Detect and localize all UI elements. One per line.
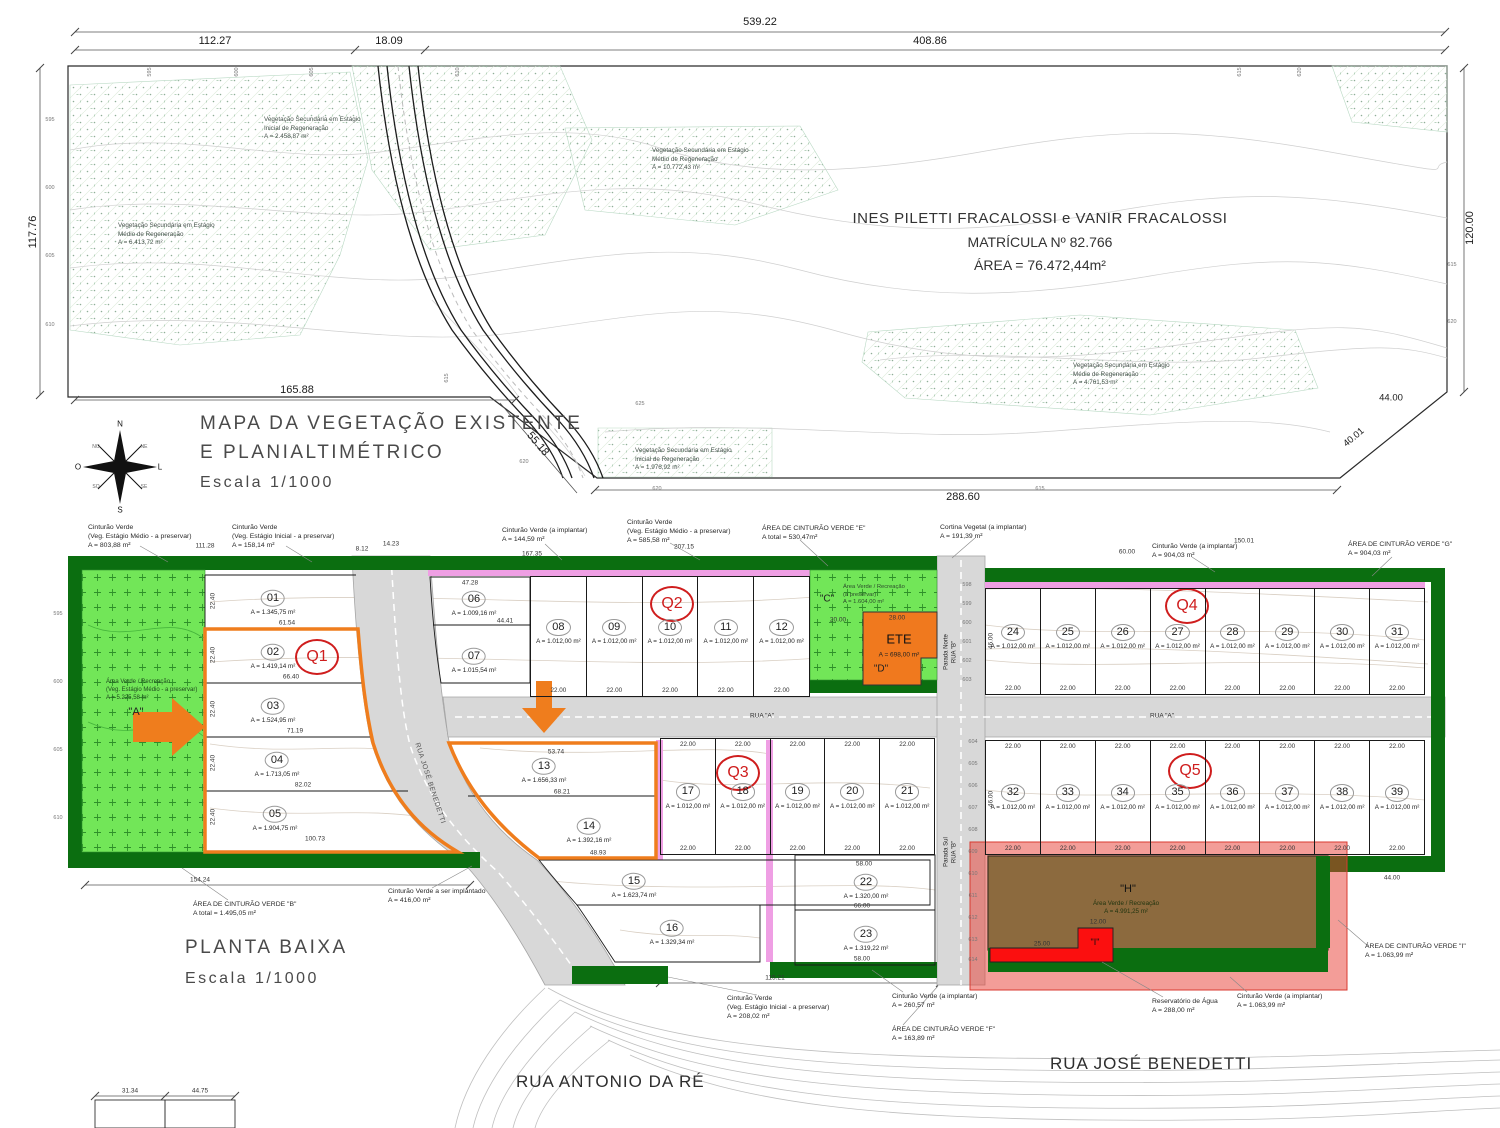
lot-36: 22.0036A = 1.012,00 m²22.00 bbox=[1206, 741, 1261, 854]
compass-se: SE bbox=[141, 484, 148, 490]
elev-tick: 605 bbox=[968, 761, 977, 767]
lot-21: 22.0021A = 1.012,00 m²22.00 bbox=[880, 739, 934, 854]
dim: 115.21 bbox=[765, 975, 784, 982]
compass-rose bbox=[83, 430, 157, 504]
dim-left: 117.76 bbox=[27, 216, 39, 249]
elev-tick: 600 bbox=[962, 620, 971, 626]
lot-28: 28A = 1.012,00 m²22.00 bbox=[1206, 589, 1261, 694]
ann-reservatorio: Reservatório de ÁguaA = 288,00 m² bbox=[1152, 997, 1218, 1015]
elev-tick: 604 bbox=[968, 739, 977, 745]
elev-tick: 610 bbox=[45, 322, 54, 328]
dim: 8.12 bbox=[356, 546, 369, 553]
elev-tick: 595 bbox=[147, 67, 153, 76]
dim-side: 22.40 bbox=[210, 647, 217, 663]
elev-tick: 598 bbox=[962, 582, 971, 588]
compass-o: O bbox=[75, 463, 81, 472]
quadra5-lot-row: 22.0032A = 1.012,00 m²22.00 22.0033A = 1… bbox=[985, 740, 1425, 855]
quadra4-lot-row: 24A = 1.012,00 m²22.00 25A = 1.012,00 m²… bbox=[985, 588, 1425, 695]
dim: 14.23 bbox=[383, 541, 399, 548]
ann-cinturao-f: ÁREA DE CINTURÃO VERDE "F"A = 163,89 m² bbox=[892, 1025, 995, 1043]
elev-tick: 612 bbox=[968, 915, 977, 921]
dim-seg2: 18.09 bbox=[375, 35, 403, 47]
lot-30: 30A = 1.012,00 m²22.00 bbox=[1315, 589, 1370, 694]
elev-tick: 602 bbox=[962, 658, 971, 664]
area-h-label: Área Verde / RecreaçãoA = 4.991,25 m² bbox=[1093, 900, 1159, 917]
lot-37: 22.0037A = 1.012,00 m²22.00 bbox=[1260, 741, 1315, 854]
lot-04: 04A = 1.713,05 m² bbox=[255, 750, 300, 778]
subdivision-plan-sheet: 539.22 112.27 18.09 408.86 117.76 120.00… bbox=[0, 0, 1500, 1128]
dim: 111.28 bbox=[196, 543, 215, 550]
dim: 31.34 bbox=[122, 1088, 138, 1095]
elev-tick: 600 bbox=[234, 67, 240, 76]
lot-35: 22.0035A = 1.012,00 m²22.00 bbox=[1151, 741, 1206, 854]
lot-24: 24A = 1.012,00 m²22.00 bbox=[986, 589, 1041, 694]
dim-lot03-len: 71.19 bbox=[287, 728, 303, 735]
lot-05: 05A = 1.904,75 m² bbox=[253, 804, 298, 832]
corner-detail-boxes bbox=[95, 1100, 235, 1128]
owner-name: INES PILETTI FRACALOSSI e VANIR FRACALOS… bbox=[810, 210, 1270, 227]
lot-09: 09A = 1.012,00 m²22.00 bbox=[587, 577, 643, 696]
area-i-name: "I" bbox=[1091, 937, 1100, 947]
bottom-street-lines bbox=[455, 988, 1500, 1128]
lot-12: 12A = 1.012,00 m²22.00 bbox=[754, 577, 809, 696]
elev-tick: 600 bbox=[53, 679, 62, 685]
elev-tick: 610 bbox=[968, 871, 977, 877]
compass-no: NO bbox=[92, 444, 100, 450]
veg-label-3: Vegetação Secundária em EstágioMédio de … bbox=[652, 147, 749, 173]
dim-side: 22.40 bbox=[210, 701, 217, 717]
lot-34: 22.0034A = 1.012,00 m²22.00 bbox=[1096, 741, 1151, 854]
lot-32: 22.0032A = 1.012,00 m²22.00 bbox=[986, 741, 1041, 854]
elev-tick: 615 bbox=[1447, 262, 1456, 268]
lot-27: 27A = 1.012,00 m²22.00 bbox=[1151, 589, 1206, 694]
dim-side: 22.40 bbox=[210, 593, 217, 609]
dim-lot04-len: 82.02 bbox=[295, 782, 311, 789]
elev-tick: 615 bbox=[444, 373, 450, 382]
dim-lot01-len: 61.54 bbox=[279, 620, 295, 627]
dim: 60.00 bbox=[1119, 549, 1135, 556]
dim: 44.75 bbox=[192, 1088, 208, 1095]
dim-side: 22.40 bbox=[210, 809, 217, 825]
street-rua-a: RUA "A" bbox=[750, 713, 774, 720]
ann-cv-implantar-3: Cinturão Verde (a implantar)A = 260,57 m… bbox=[892, 992, 977, 1010]
ann-cinturao-b: ÁREA DE CINTURÃO VERDE "B"A total = 1.49… bbox=[193, 900, 296, 918]
lot-11: 11A = 1.012,00 m²22.00 bbox=[698, 577, 754, 696]
lot-25: 25A = 1.012,00 m²22.00 bbox=[1041, 589, 1096, 694]
ann-cinturao-i: ÁREA DE CINTURÃO VERDE "I"A = 1.063,99 m… bbox=[1365, 942, 1466, 960]
lot-17: 22.0017A = 1.012,00 m²22.00 bbox=[661, 739, 716, 854]
ann-cv-inicial-2: Cinturão Verde(Veg. Estágio Inicial - a … bbox=[727, 994, 829, 1022]
ann-cv-implantar-4: Cinturão Verde (a implantar)A = 1.063,99… bbox=[1237, 992, 1322, 1010]
elev-tick: 615 bbox=[1237, 67, 1243, 76]
elev-tick: 620 bbox=[519, 459, 528, 465]
area-c-name: "C" bbox=[820, 594, 834, 605]
lot-13: 13A = 1.656,33 m² bbox=[522, 756, 567, 784]
ann-cv-ser-implantado: Cinturão Verde a ser implantadoA = 416,0… bbox=[388, 887, 485, 905]
lot-03: 03A = 1.524,95 m² bbox=[251, 696, 296, 724]
street-rua-a: RUA "A" bbox=[1150, 713, 1174, 720]
quadra3-lot-row: 22.0017A = 1.012,00 m²22.00 22.0018A = 1… bbox=[660, 738, 935, 855]
dim: 25.00 bbox=[1034, 941, 1050, 948]
area-c-label: Área Verde / Recreação(a preservar)A = 1… bbox=[843, 584, 905, 607]
dim-seg3: 408.86 bbox=[913, 35, 947, 47]
elev-tick: 595 bbox=[45, 117, 54, 123]
dim-lot05-len: 100.73 bbox=[305, 836, 325, 843]
owner-matricula: MATRÍCULA Nº 82.766 bbox=[810, 234, 1270, 250]
ann-cortina-vegetal: Cortina Vegetal (a implantar)A = 191,39 … bbox=[940, 523, 1027, 541]
area-a-name: "A" bbox=[128, 706, 143, 718]
ann-cv-implantar-2: Cinturão Verde (a implantar)A = 904,03 m… bbox=[1152, 542, 1237, 560]
lot-33: 22.0033A = 1.012,00 m²22.00 bbox=[1041, 741, 1096, 854]
dim: 207.15 bbox=[674, 544, 694, 551]
compass-l: L bbox=[158, 463, 162, 472]
dim-lot14-bottom: 48.93 bbox=[590, 850, 606, 857]
dim: 167.35 bbox=[522, 551, 542, 558]
street-rua-b-south: Parada SulRUA "B" bbox=[943, 837, 960, 867]
compass-n: N bbox=[117, 420, 123, 429]
elev-tick: 620 bbox=[1447, 319, 1456, 325]
ete-label: ETE bbox=[886, 632, 911, 647]
ann-cv-inicial: Cinturão Verde(Veg. Estágio Inicial - a … bbox=[232, 523, 334, 551]
dim-lot06-bottom: 44.41 bbox=[497, 618, 513, 625]
veg-label-5: Vegetação Secundária em EstágioInicial d… bbox=[635, 447, 732, 473]
ann-cv-implantar-1: Cinturão Verde (a implantar)A = 144,59 m… bbox=[502, 526, 587, 544]
lot-16: 16A = 1.329,34 m² bbox=[650, 918, 695, 946]
elev-tick: 614 bbox=[968, 957, 977, 963]
compass-so: SO bbox=[92, 484, 99, 490]
owner-title-block: INES PILETTI FRACALOSSI e VANIR FRACALOS… bbox=[810, 210, 1270, 273]
compass-ne: NE bbox=[141, 444, 148, 450]
area-d-name: "D" bbox=[874, 664, 888, 675]
elev-tick: 615 bbox=[1035, 486, 1044, 492]
elev-tick: 608 bbox=[968, 827, 977, 833]
lot-02: 02A = 1.419,14 m² bbox=[251, 642, 296, 670]
dim-lot02-len: 66.40 bbox=[283, 674, 299, 681]
street-rua-b-north: Parada NorteRUA "B" bbox=[943, 634, 960, 670]
lot-29: 29A = 1.012,00 m²22.00 bbox=[1260, 589, 1315, 694]
lot-18: 22.0018A = 1.012,00 m²22.00 bbox=[716, 739, 771, 854]
elev-tick: 599 bbox=[962, 601, 971, 607]
dim-lot23-bottom: 58.00 bbox=[854, 956, 870, 963]
lot-06: 06A = 1.009,16 m² bbox=[452, 589, 497, 617]
ann-cv-medio: Cinturão Verde(Veg. Estágio Médio - a pr… bbox=[88, 523, 192, 551]
elev-tick: 605 bbox=[45, 253, 54, 259]
elev-tick: 610 bbox=[53, 815, 62, 821]
dim-bottom-left: 165.88 bbox=[280, 384, 314, 396]
veg-label-1: Vegetação Secundária em EstágioInicial d… bbox=[264, 116, 361, 142]
ann-cinturao-e: ÁREA DE CINTURÃO VERDE "E"A total = 530,… bbox=[762, 524, 865, 542]
dim: 12.00 bbox=[1090, 919, 1106, 926]
ann-cv-medio-2: Cinturão Verde(Veg. Estágio Médio - a pr… bbox=[627, 518, 731, 546]
elev-tick: 601 bbox=[962, 639, 971, 645]
lot-23: 23A = 1.319,22 m² bbox=[844, 924, 889, 952]
lot-08: 08A = 1.012,00 m²22.00 bbox=[531, 577, 587, 696]
compass-s: S bbox=[117, 506, 122, 515]
lot-01: 01A = 1.345,75 m² bbox=[251, 588, 296, 616]
owner-area: ÁREA = 76.472,44m² bbox=[810, 257, 1270, 273]
veg-label-4: Vegetação Secundária em EstágioMédio de … bbox=[1073, 362, 1170, 388]
quadra2-lot-row: 08A = 1.012,00 m²22.00 09A = 1.012,00 m²… bbox=[530, 576, 810, 697]
dim: 44.00 bbox=[1384, 875, 1400, 882]
dim-lot22-top: 58.00 bbox=[856, 861, 872, 868]
lot-31: 31A = 1.012,00 m²22.00 bbox=[1370, 589, 1424, 694]
map-title: MAPA DA VEGETAÇÃO EXISTENTE E PLANIALTIM… bbox=[200, 410, 582, 495]
elev-tick: 625 bbox=[635, 401, 644, 407]
dim: 150.01 bbox=[1234, 538, 1254, 545]
lot-07: 07A = 1.015,54 m² bbox=[452, 646, 497, 674]
elev-tick: 609 bbox=[968, 849, 977, 855]
elev-tick: 600 bbox=[45, 185, 54, 191]
elev-tick: 595 bbox=[53, 611, 62, 617]
lot-26: 26A = 1.012,00 m²22.00 bbox=[1096, 589, 1151, 694]
dim-right-a: 44.00 bbox=[1379, 393, 1403, 404]
dim: 154.24 bbox=[190, 877, 210, 884]
elev-tick: 620 bbox=[1297, 67, 1303, 76]
area-h-name: "H" bbox=[1120, 883, 1136, 895]
lot-10: 10A = 1.012,00 m²22.00 bbox=[643, 577, 699, 696]
elev-tick: 611 bbox=[969, 893, 978, 899]
lot-19: 22.0019A = 1.012,00 m²22.00 bbox=[771, 739, 826, 854]
street-jose-benedetti: RUA JOSÉ BENEDETTI bbox=[1050, 1054, 1252, 1074]
dim-side: 22.40 bbox=[210, 755, 217, 771]
elev-tick: 603 bbox=[962, 677, 971, 683]
ann-cinturao-g: ÁREA DE CINTURÃO VERDE "G"A = 904,03 m² bbox=[1348, 540, 1452, 558]
dim-right: 120.00 bbox=[1464, 211, 1476, 245]
lot-38: 22.0038A = 1.012,00 m²22.00 bbox=[1315, 741, 1370, 854]
quadra1-label: Q1 bbox=[295, 639, 339, 675]
dim-lot06-top: 47.28 bbox=[462, 580, 478, 587]
lot-15: 15A = 1.623,74 m² bbox=[612, 871, 657, 899]
elev-tick: 613 bbox=[968, 937, 977, 943]
veg-label-2: Vegetação Secundária em EstágioMédio de … bbox=[118, 222, 215, 248]
dim-lot22-bottom: 66.00 bbox=[854, 903, 870, 910]
lot-39: 22.0039A = 1.012,00 m²22.00 bbox=[1370, 741, 1424, 854]
plan-title: PLANTA BAIXA Escala 1/1000 bbox=[185, 934, 348, 991]
elev-tick: 605 bbox=[53, 747, 62, 753]
elev-tick: 605 bbox=[309, 67, 315, 76]
dim: 20.00 bbox=[830, 617, 846, 624]
lot-14: 14A = 1.392,16 m² bbox=[567, 816, 612, 844]
dim-seg1: 112.27 bbox=[199, 35, 232, 47]
dim-lot13-bottom: 68.21 bbox=[554, 789, 570, 796]
lot-22: 22A = 1.320,00 m² bbox=[844, 872, 889, 900]
area-a-label: Área Verde / Recreação(Veg. Estágio Médi… bbox=[106, 678, 197, 702]
ete-area: A = 698,00 m² bbox=[879, 652, 920, 659]
dim-lot13-top: 53.74 bbox=[548, 749, 564, 756]
elev-tick: 606 bbox=[968, 783, 977, 789]
dim: 28.00 bbox=[889, 615, 905, 622]
lot-20: 22.0020A = 1.012,00 m²22.00 bbox=[825, 739, 880, 854]
elev-tick: 620 bbox=[652, 486, 661, 492]
dim-bottom-mid: 288.60 bbox=[946, 491, 980, 503]
street-antonio-da-re: RUA ANTONIO DA RÉ bbox=[516, 1072, 705, 1092]
elev-tick: 610 bbox=[455, 67, 461, 76]
elev-tick: 607 bbox=[968, 805, 977, 811]
dim-total-top: 539.22 bbox=[743, 16, 777, 28]
